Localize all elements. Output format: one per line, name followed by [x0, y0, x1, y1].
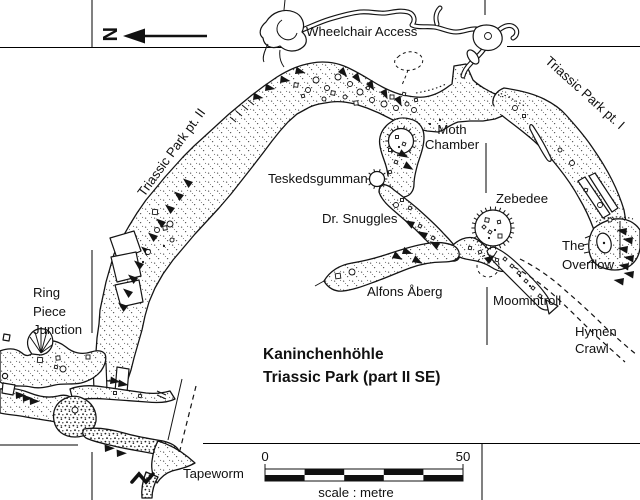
north-letter: N: [98, 27, 120, 41]
tapeworm-dashed-line: [179, 386, 196, 454]
junction-ring-piece: [0, 341, 106, 388]
label-overflow-line1: The: [562, 238, 585, 253]
map-title-line2: Triassic Park (part II SE): [263, 369, 440, 386]
label-dr-snuggles: Dr. Snuggles: [322, 211, 398, 226]
label-moth-line2: Chamber: [425, 137, 480, 152]
passage-triassic-park-2: [94, 62, 517, 382]
label-zebedee: Zebedee: [496, 191, 548, 206]
north-arrowhead: [123, 29, 145, 44]
passages: [0, 62, 640, 498]
label-wheelchair-access: Wheelchair Access: [306, 24, 418, 39]
map-title-line1: Kaninchenhöhle: [263, 346, 384, 363]
label-alfons-aberg: Alfons Åberg: [367, 284, 443, 299]
moth-chamber-circle: [389, 129, 414, 154]
label-moomintroll: Moomintroll: [493, 293, 561, 308]
zebedee-chamber: [475, 210, 511, 246]
teskedsgumman-circle: [370, 172, 385, 187]
label-ring-line3: Junction: [33, 322, 82, 337]
cave-survey-map: Wheelchair Access Triassic Park pt. II T…: [0, 0, 640, 500]
scale-caption: scale : metre: [318, 485, 394, 500]
cave-map-svg: Wheelchair Access Triassic Park pt. II T…: [0, 0, 640, 500]
label-hymen-line1: Hymen: [575, 324, 617, 339]
dashed-chamber-outline: [395, 52, 423, 71]
title-block: Kaninchenhöhle Triassic Park (part II SE…: [263, 346, 440, 386]
label-ring-line1: Ring: [33, 285, 60, 300]
label-teskedsgumman: Teskedsgumman: [268, 171, 368, 186]
label-ring-line2: Piece: [33, 304, 66, 319]
north-arrow: N: [98, 27, 207, 44]
scale-bar: 0 50 scale : metre: [261, 449, 470, 500]
scale-end: 50: [456, 449, 471, 464]
scale-start: 0: [261, 449, 268, 464]
label-moth-line1: Moth: [437, 122, 466, 137]
label-tapeworm: Tapeworm: [183, 466, 244, 481]
label-overflow-line2: Overflow: [562, 257, 615, 272]
label-hymen-line2: Crawl: [575, 341, 609, 356]
